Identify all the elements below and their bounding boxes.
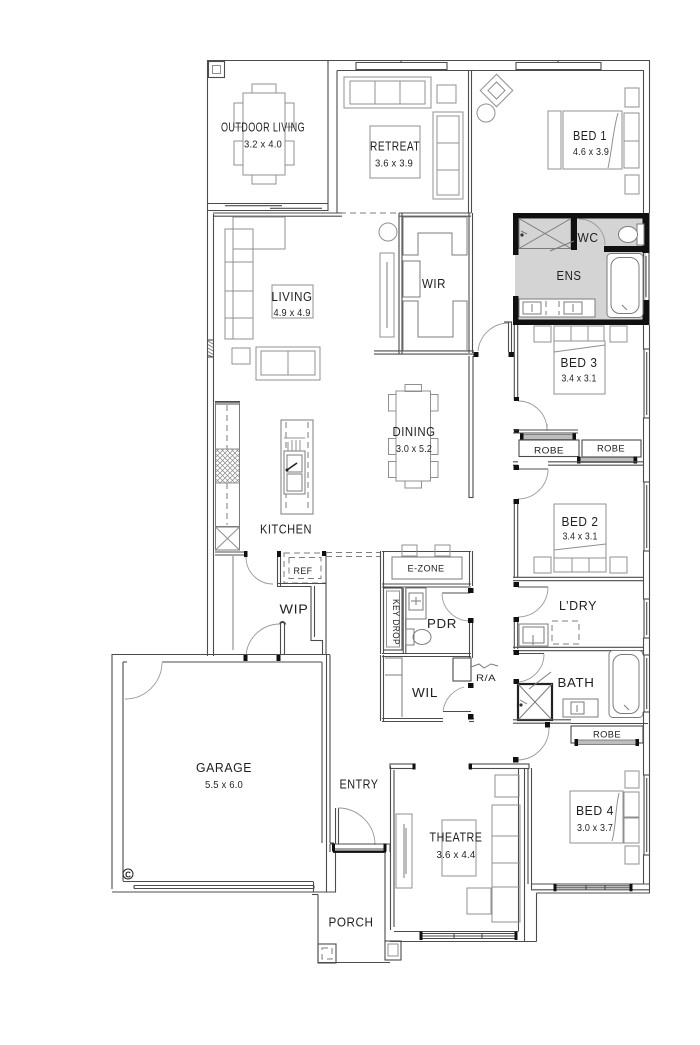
svg-text:3.0 x 3.7: 3.0 x 3.7 bbox=[577, 822, 613, 834]
svg-text:PORCH: PORCH bbox=[329, 915, 374, 930]
svg-text:OUTDOOR LIVING: OUTDOOR LIVING bbox=[221, 120, 305, 135]
svg-text:BED 4: BED 4 bbox=[576, 803, 614, 818]
svg-text:ENTRY: ENTRY bbox=[340, 777, 379, 792]
svg-text:REF: REF bbox=[294, 566, 313, 577]
svg-text:3.4 x 3.1: 3.4 x 3.1 bbox=[563, 531, 598, 543]
svg-text:3.6 x 4.4: 3.6 x 4.4 bbox=[437, 849, 476, 861]
svg-text:DINING: DINING bbox=[393, 424, 436, 439]
svg-text:BED 1: BED 1 bbox=[573, 128, 607, 143]
svg-text:5.5 x 6.0: 5.5 x 6.0 bbox=[205, 779, 243, 791]
svg-text:WIL: WIL bbox=[412, 685, 438, 700]
svg-text:LIVING: LIVING bbox=[272, 289, 313, 304]
svg-text:PDR: PDR bbox=[427, 616, 457, 631]
svg-text:L’DRY: L’DRY bbox=[559, 598, 597, 613]
svg-text:R/A: R/A bbox=[476, 673, 496, 684]
svg-text:3.6 x 3.9: 3.6 x 3.9 bbox=[375, 158, 413, 170]
svg-text:BED 2: BED 2 bbox=[562, 514, 599, 529]
svg-text:BATH: BATH bbox=[558, 675, 595, 690]
svg-text:4.9 x 4.9: 4.9 x 4.9 bbox=[274, 307, 311, 319]
svg-text:ROBE: ROBE bbox=[534, 446, 564, 457]
svg-text:RETREAT: RETREAT bbox=[370, 139, 420, 154]
svg-text:4.6 x 3.9: 4.6 x 3.9 bbox=[573, 146, 609, 158]
svg-text:ENS: ENS bbox=[557, 268, 582, 283]
svg-text:WIR: WIR bbox=[422, 276, 446, 291]
svg-text:BED 3: BED 3 bbox=[561, 355, 598, 370]
svg-text:3.0 x 5.2: 3.0 x 5.2 bbox=[396, 443, 432, 455]
svg-text:WC: WC bbox=[578, 230, 599, 245]
svg-text:C: C bbox=[125, 871, 131, 880]
svg-text:ROBE: ROBE bbox=[597, 444, 625, 455]
svg-text:GARAGE: GARAGE bbox=[196, 760, 252, 775]
svg-text:WIP: WIP bbox=[280, 602, 309, 617]
svg-text:ROBE: ROBE bbox=[593, 730, 621, 741]
svg-text:KEY DROP: KEY DROP bbox=[390, 599, 401, 645]
svg-text:3.2 x 4.0: 3.2 x 4.0 bbox=[244, 139, 282, 151]
svg-text:E-ZONE: E-ZONE bbox=[408, 564, 445, 575]
svg-text:THEATRE: THEATRE bbox=[430, 830, 483, 845]
svg-text:KITCHEN: KITCHEN bbox=[260, 522, 312, 537]
svg-text:3.4 x 3.1: 3.4 x 3.1 bbox=[562, 373, 597, 385]
